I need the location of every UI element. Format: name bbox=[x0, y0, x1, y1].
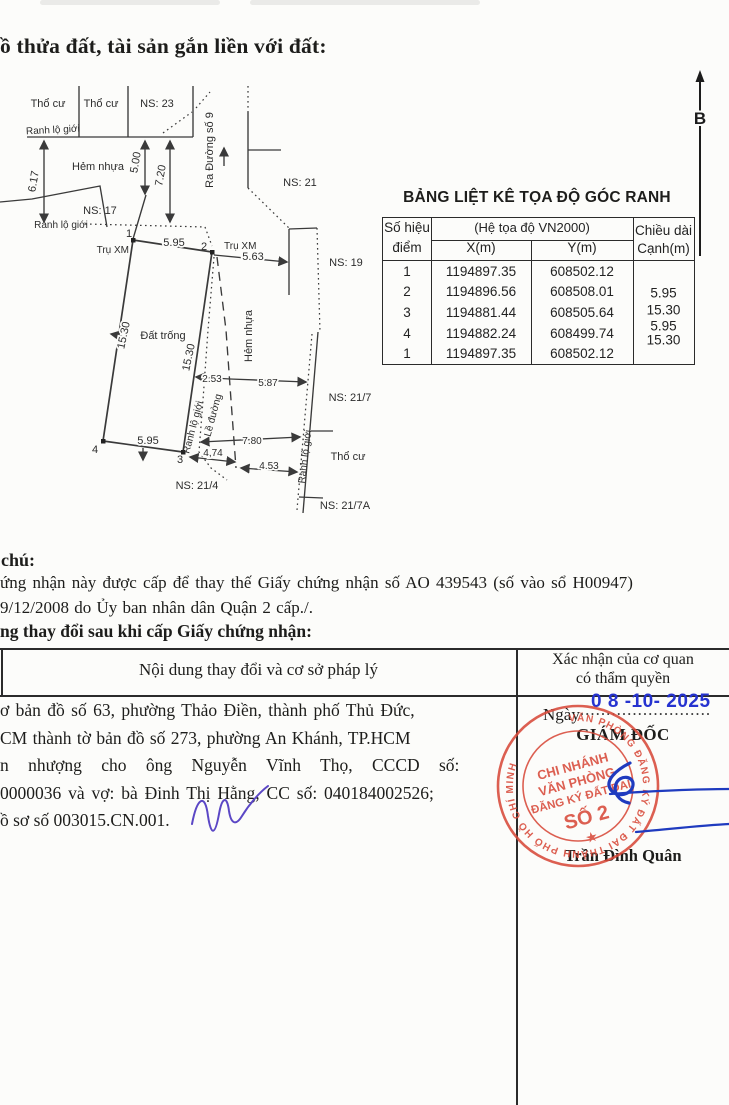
coords-table-title: BẢNG LIỆT KÊ TỌA ĐỘ GÓC RANH bbox=[383, 189, 691, 207]
confirm-col-header-line1: Xác nhận của cơ quan bbox=[517, 651, 729, 670]
coord-x: 1194882.24 bbox=[431, 326, 531, 341]
col-header-length-2: Cạnh(m) bbox=[633, 242, 694, 257]
boundary-label: Ranh lộ giới bbox=[26, 124, 80, 138]
col-header-length: Chiều dài bbox=[633, 224, 694, 239]
coord-y: 608499.74 bbox=[531, 326, 633, 341]
edge-length: 15.30 bbox=[633, 333, 694, 348]
parcel-label: NS: 21/4 bbox=[176, 480, 219, 492]
survey-marker-label: Trụ XM bbox=[97, 245, 129, 256]
alley-label: Hẻm nhựa bbox=[72, 161, 125, 173]
dimension-label: 6.17 bbox=[26, 170, 42, 193]
change-content-line: ồ sơ số 003015.CN.001. bbox=[0, 810, 170, 831]
area-label: Đất trống bbox=[140, 330, 185, 342]
point-label: 1 bbox=[126, 228, 132, 240]
director-title: GIÁM ĐỐC bbox=[517, 725, 729, 745]
change-content-line: n nhượng cho ông Nguyễn Vĩnh Thọ, CCCD s… bbox=[0, 755, 459, 776]
point-label: 4 bbox=[92, 444, 98, 456]
dimension-label: 5.63 bbox=[242, 251, 263, 263]
point-id: 2 bbox=[383, 284, 431, 299]
dimension-label: 5.87 bbox=[258, 378, 278, 389]
stamp-number: SỐ 2 bbox=[561, 799, 611, 834]
page-title: ồ thửa đất, tài sản gắn liền với đất: bbox=[0, 34, 327, 59]
scan-smudge bbox=[40, 0, 220, 5]
coord-x: 1194897.35 bbox=[431, 346, 531, 361]
stamp-star-icon: ★ bbox=[585, 829, 599, 845]
point-id: 3 bbox=[383, 305, 431, 320]
cadastral-sketch-and-stamps: Thổ cư Thổ cư NS: 23 Ranh lộ giới Hẻm nh… bbox=[0, 0, 729, 1105]
director-signature bbox=[609, 763, 729, 832]
coord-y: 608502.12 bbox=[531, 264, 633, 279]
street-exit-label: Ra Đường số 9 bbox=[204, 112, 216, 188]
col-header-point-no: Số hiệu bbox=[383, 221, 431, 236]
parcel-label: NS: 21/7 bbox=[329, 392, 372, 404]
dimension-label: 2.53 bbox=[202, 374, 222, 385]
date-stamp: 0 8 -10- 2025 bbox=[591, 691, 711, 713]
col-header-x: X(m) bbox=[431, 241, 531, 256]
col-header-system: (Hệ tọa độ VN2000) bbox=[431, 221, 633, 235]
dimension-label: 7.20 bbox=[153, 164, 169, 187]
stamp-line-2: VĂN PHÒNG bbox=[537, 764, 617, 799]
parcel-label: NS: 21 bbox=[283, 177, 317, 189]
note-line-2: 9/12/2008 do Ủy ban nhân dân Quận 2 cấp.… bbox=[0, 598, 313, 618]
scanned-land-certificate-page: ồ thửa đất, tài sản gắn liền với đất: BẢ… bbox=[0, 0, 729, 1105]
point-id: 1 bbox=[383, 346, 431, 361]
table-row: 1 1194897.35 608502.12 bbox=[383, 261, 694, 282]
alley-label: Hẻm nhựa bbox=[243, 309, 255, 362]
boundary-label: Ranh lộ giới bbox=[34, 220, 88, 231]
edge-length: 5.95 bbox=[633, 286, 694, 301]
confirm-col-header: Xác nhận của cơ quan có thẩm quyền bbox=[517, 651, 729, 689]
north-arrow-head bbox=[696, 70, 705, 82]
coord-y: 608502.12 bbox=[531, 346, 633, 361]
dimension-label: 15.30 bbox=[115, 321, 132, 350]
col-header-point-no-2: điểm bbox=[383, 241, 431, 256]
change-content-line: 0000036 và vợ: bà Đinh Thị Hằng, CC số: … bbox=[0, 783, 434, 804]
cadastral-map: Thổ cư Thổ cư NS: 23 Ranh lộ giới Hẻm nh… bbox=[0, 86, 371, 513]
boundary-label: Ranh lộ giới bbox=[181, 400, 206, 455]
curb-label: Lề đường bbox=[202, 392, 225, 437]
parcel-label: NS: 17 bbox=[83, 205, 117, 217]
dimension-label: 4,74 bbox=[203, 448, 223, 459]
coords-table: Số hiệu điểm (Hệ tọa độ VN2000) X(m) Y(m… bbox=[382, 217, 695, 365]
table-border-top bbox=[0, 648, 729, 650]
change-content-line: CM thành tờ bản đồ số 273, phường An Khá… bbox=[0, 728, 411, 749]
note-line-1: ứng nhận này được cấp để thay thế Giấy c… bbox=[0, 573, 633, 593]
changes-heading: ng thay đổi sau khi cấp Giấy chứng nhận: bbox=[0, 621, 312, 642]
dimension-label: 5.95 bbox=[163, 237, 184, 249]
dimension-label: 5.95 bbox=[137, 435, 158, 447]
coord-y: 608508.01 bbox=[531, 284, 633, 299]
survey-marker-label: Trụ XM bbox=[224, 241, 256, 252]
dimension-label: 4.53 bbox=[259, 461, 279, 472]
point-label: 2 bbox=[201, 241, 207, 253]
parcel-label: Thổ cư bbox=[31, 98, 67, 110]
coord-y: 608505.64 bbox=[531, 305, 633, 320]
edge-length: 5.95 bbox=[633, 319, 694, 334]
point-id: 4 bbox=[383, 326, 431, 341]
north-arrow: B bbox=[694, 70, 706, 256]
coord-x: 1194881.44 bbox=[431, 305, 531, 320]
signer-name: Trần Đình Quân bbox=[517, 846, 729, 866]
date-label: Ngày bbox=[543, 705, 580, 724]
dimension-label: 15.30 bbox=[180, 343, 197, 372]
parcel-label: NS: 19 bbox=[329, 257, 363, 269]
north-label: B bbox=[694, 109, 706, 128]
edge-length: 15.30 bbox=[633, 303, 694, 318]
stamp-line-3: ĐĂNG KÝ ĐẤT ĐAI bbox=[530, 778, 633, 817]
table-column-divider bbox=[516, 648, 518, 1105]
parcel-label: Thổ cư bbox=[331, 451, 367, 463]
dimension-label: 5.00 bbox=[128, 151, 144, 174]
stamp-line-1: CHI NHÁNH bbox=[536, 750, 610, 783]
scan-smudge bbox=[250, 0, 480, 5]
coord-x: 1194896.56 bbox=[431, 284, 531, 299]
boundary-label: Ranh lộ giới bbox=[297, 429, 314, 484]
changes-col-header: Nội dung thay đổi và cơ sở pháp lý bbox=[0, 660, 517, 680]
coord-x: 1194897.35 bbox=[431, 264, 531, 279]
point-label: 3 bbox=[177, 454, 183, 466]
confirm-col-header-line2: có thẩm quyền bbox=[517, 670, 729, 689]
dimension-label: 7.80 bbox=[242, 436, 262, 447]
note-label: chú: bbox=[1, 550, 35, 571]
parcel-label: NS: 23 bbox=[140, 98, 174, 110]
point-id: 1 bbox=[383, 264, 431, 279]
col-header-y: Y(m) bbox=[531, 241, 633, 256]
parcel-label: NS: 21/7A bbox=[320, 500, 371, 512]
change-content-line: ơ bản đồ số 63, phường Thảo Điền, thành … bbox=[0, 700, 415, 721]
parcel-label: Thổ cư bbox=[84, 98, 120, 110]
